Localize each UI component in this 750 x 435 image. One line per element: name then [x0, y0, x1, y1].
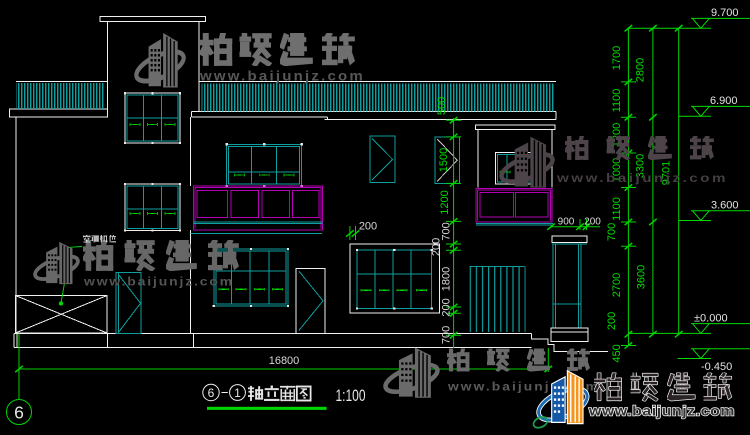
svg-text:450: 450 — [611, 344, 623, 362]
svg-text:2800: 2800 — [635, 58, 647, 82]
svg-text:1800: 1800 — [441, 267, 453, 291]
svg-text:-0.450: -0.450 — [701, 361, 732, 373]
svg-text:1700: 1700 — [611, 46, 623, 70]
svg-text:1100: 1100 — [611, 197, 623, 221]
svg-text:www.baijunjz.com: www.baijunjz.com — [199, 69, 365, 84]
svg-text:200: 200 — [441, 298, 453, 316]
svg-text:2700: 2700 — [611, 273, 623, 297]
svg-text:1:100: 1:100 — [336, 387, 366, 405]
svg-text:www.baijunjz.com: www.baijunjz.com — [83, 275, 234, 289]
svg-text:3600: 3600 — [636, 265, 648, 289]
svg-text:3.600: 3.600 — [711, 200, 739, 212]
svg-text:500: 500 — [436, 97, 448, 115]
svg-text:6.900: 6.900 — [710, 95, 738, 107]
svg-text:700: 700 — [441, 326, 453, 344]
svg-text:www.baijunjz.com: www.baijunjz.com — [556, 171, 728, 185]
svg-text:1500: 1500 — [438, 148, 450, 172]
svg-text:1100: 1100 — [611, 89, 623, 113]
svg-text:200: 200 — [359, 221, 377, 233]
svg-text:6: 6 — [14, 403, 24, 423]
svg-text:16800: 16800 — [269, 355, 300, 367]
svg-text:200: 200 — [584, 217, 601, 228]
svg-text:www.baijunjz.com: www.baijunjz.com — [588, 404, 735, 419]
svg-text:±0.000: ±0.000 — [694, 313, 728, 325]
svg-text:1: 1 — [234, 386, 241, 400]
svg-text:9.700: 9.700 — [711, 7, 739, 19]
svg-text:1200: 1200 — [439, 190, 451, 214]
svg-text:200: 200 — [431, 238, 443, 256]
svg-text:900: 900 — [558, 217, 575, 228]
svg-text:200: 200 — [606, 312, 618, 330]
svg-text:6: 6 — [208, 386, 215, 400]
svg-text:700: 700 — [606, 223, 618, 241]
